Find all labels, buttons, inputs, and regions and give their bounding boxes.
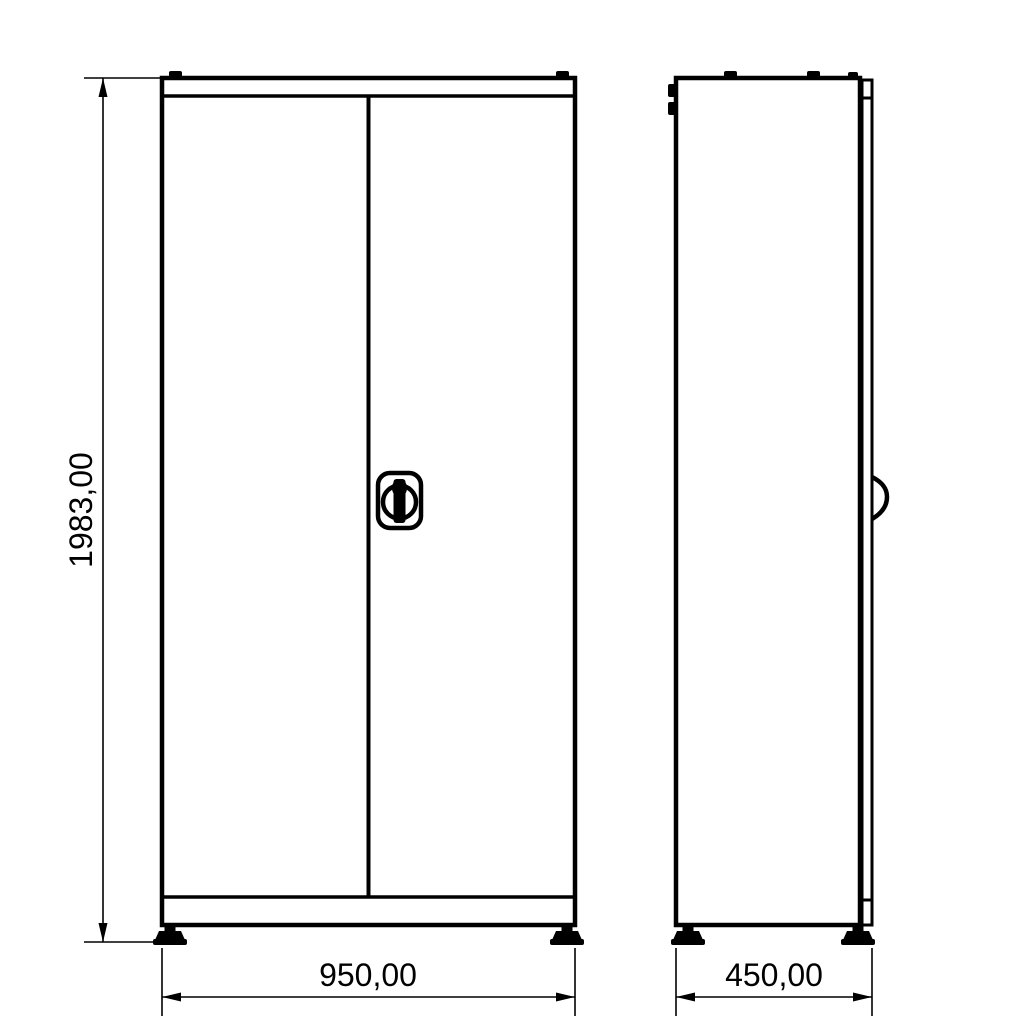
foot-stem	[683, 925, 694, 932]
arrow-right-icon	[853, 993, 872, 1002]
arrow-left-icon	[162, 993, 181, 1002]
front-view	[153, 71, 584, 945]
drawing-canvas: 1983,00 950,00 450,00	[0, 0, 1024, 1024]
foot-cone	[673, 931, 703, 940]
arrow-up-icon	[99, 78, 108, 97]
height-dimension-label: 1983,00	[63, 452, 99, 568]
technical-drawing: 1983,00 950,00 450,00	[0, 0, 1024, 1024]
arrow-right-icon	[556, 993, 575, 1002]
foot-cone	[843, 931, 873, 940]
side-hinge-tab-2	[668, 102, 676, 115]
side-door-strip	[862, 80, 872, 925]
front-foot-right	[550, 925, 584, 945]
width-dimension-label: 950,00	[319, 957, 417, 993]
foot-base	[671, 939, 705, 945]
foot-base	[550, 939, 584, 945]
handle-profile-icon	[872, 477, 887, 519]
foot-cone	[155, 931, 185, 940]
side-outline	[676, 78, 860, 925]
dimension-width: 950,00	[162, 948, 575, 1016]
foot-cone	[552, 931, 582, 940]
lock-cylinder	[392, 479, 407, 497]
arrow-left-icon	[676, 993, 695, 1002]
foot-stem	[853, 925, 864, 932]
depth-dimension-label: 450,00	[725, 957, 823, 993]
arrow-down-icon	[99, 923, 108, 942]
dimension-depth: 450,00	[676, 948, 872, 1016]
foot-base	[841, 939, 875, 945]
side-hinge-tab-1	[668, 84, 676, 97]
foot-stem	[562, 925, 573, 932]
side-foot-left	[671, 925, 705, 945]
foot-stem	[165, 925, 176, 932]
side-foot-right	[841, 925, 875, 945]
side-view	[668, 71, 887, 945]
